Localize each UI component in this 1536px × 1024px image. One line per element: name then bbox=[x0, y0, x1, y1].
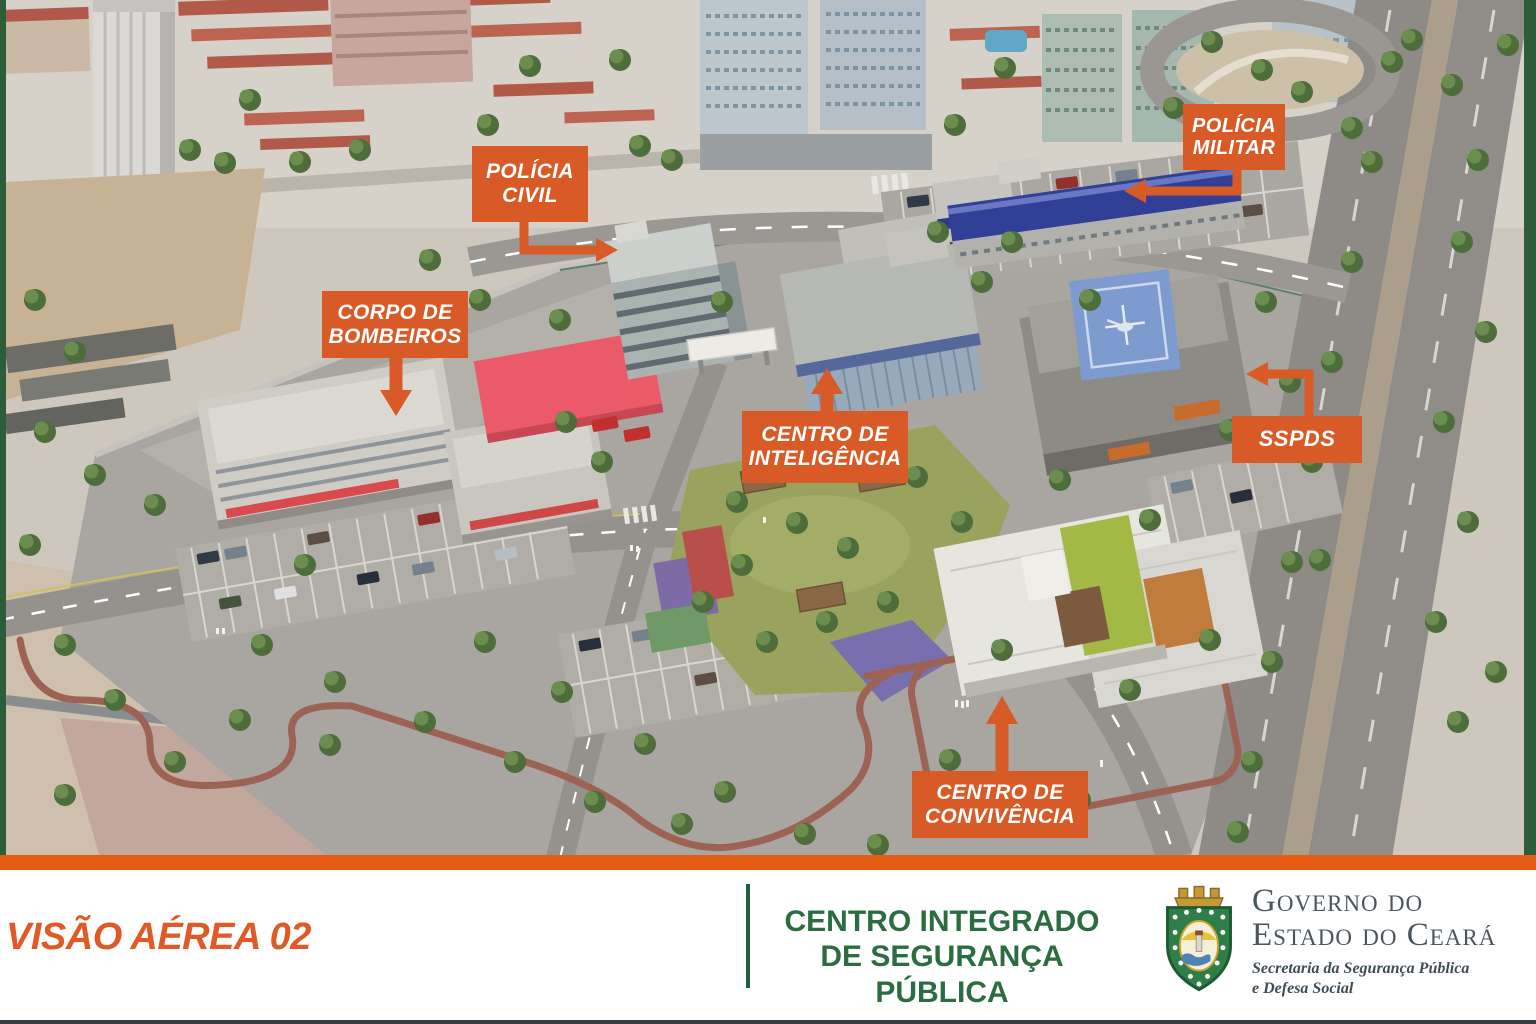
view-label: VISÃO AÉREA 02 bbox=[6, 916, 311, 959]
footer-divider bbox=[746, 884, 750, 988]
footer: VISÃO AÉREA 02 CENTRO INTEGRADO DE SEGUR… bbox=[0, 870, 1536, 1020]
secretariat-label: Secretaria da Segurança Pública e Defesa… bbox=[1252, 959, 1536, 999]
ceara-coat-of-arms-icon bbox=[1156, 882, 1242, 1000]
helipad bbox=[1069, 269, 1180, 380]
slide: POLÍCIA CIVIL POLÍCIA MILITAR CORPO DE B… bbox=[0, 0, 1536, 1024]
government-name-line1: Governo do bbox=[1252, 884, 1536, 918]
left-border bbox=[0, 0, 6, 858]
government-name-line2: Estado do Ceará bbox=[1252, 918, 1536, 952]
right-border bbox=[1524, 0, 1536, 858]
callout-centro-de-convivencia: CENTRO DE CONVIVÊNCIA bbox=[912, 771, 1088, 838]
callout-policia-militar: POLÍCIA MILITAR bbox=[1183, 104, 1285, 170]
government-signature: Governo do Estado do Ceará Secretaria da… bbox=[1150, 878, 1536, 1018]
footer-accent-bar bbox=[0, 855, 1536, 870]
aerial-view: POLÍCIA CIVIL POLÍCIA MILITAR CORPO DE B… bbox=[0, 0, 1536, 858]
callout-corpo-de-bombeiros: CORPO DE BOMBEIROS bbox=[322, 291, 468, 358]
callout-centro-de-inteligencia: CENTRO DE INTELIGÊNCIA bbox=[742, 411, 908, 483]
project-title: CENTRO INTEGRADO DE SEGURANÇA PÚBLICA bbox=[762, 904, 1122, 1010]
bottom-border bbox=[0, 1020, 1536, 1024]
callout-sspds: SSPDS bbox=[1232, 416, 1362, 463]
government-text: Governo do Estado do Ceará Secretaria da… bbox=[1252, 884, 1536, 999]
callout-policia-civil: POLÍCIA CIVIL bbox=[472, 146, 588, 222]
